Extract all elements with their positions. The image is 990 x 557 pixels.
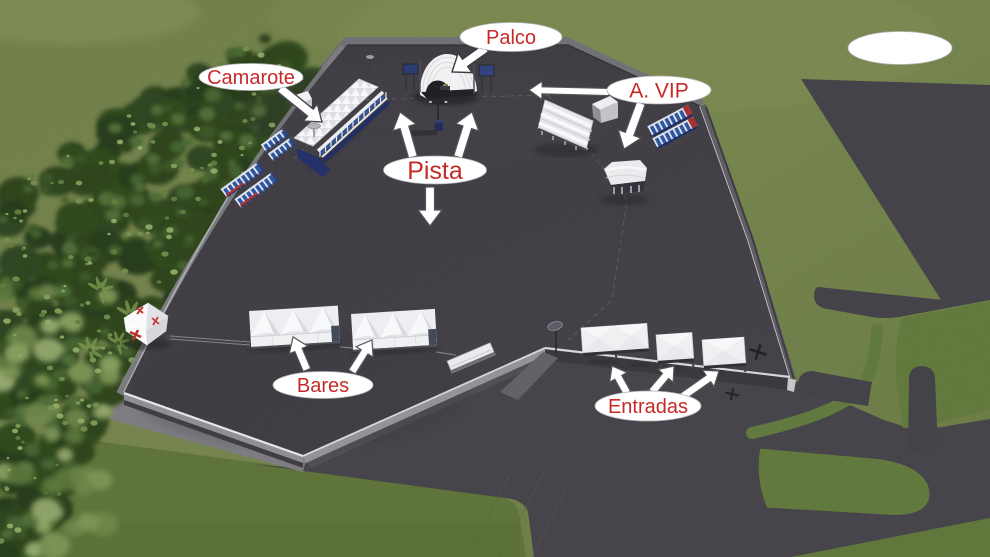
svg-text:A. VIP: A. VIP xyxy=(629,80,689,103)
svg-text:Camarote: Camarote xyxy=(207,67,295,89)
svg-text:Pista: Pista xyxy=(407,157,463,185)
svg-text:Entradas: Entradas xyxy=(608,396,688,418)
svg-text:Palco: Palco xyxy=(486,27,536,49)
svg-text:Bares: Bares xyxy=(297,375,349,397)
